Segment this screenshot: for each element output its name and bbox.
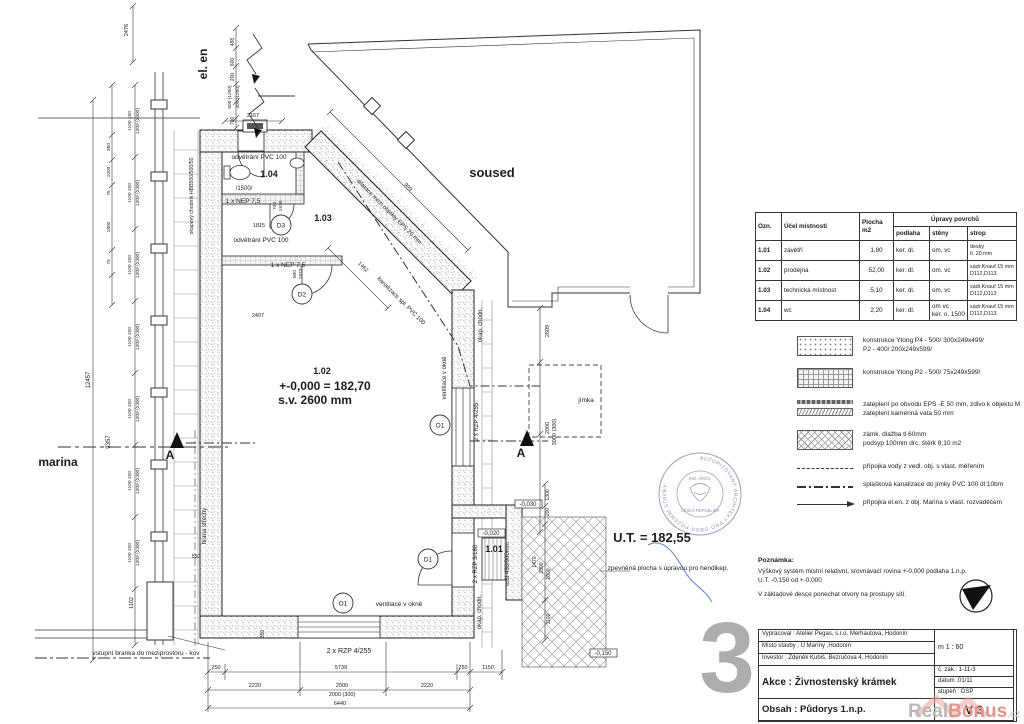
dim-w4b: 1200 (2400) — [135, 324, 141, 350]
dim-2220a: 2220 — [249, 683, 261, 689]
cell-line: wc — [784, 307, 857, 315]
legend-text: zateplení po obvodu EPS -E 50 mm, zdivo … — [863, 400, 1020, 418]
cell-line: 1.02 — [758, 267, 779, 275]
rost-label: rošt 450/900mm — [505, 542, 511, 585]
legend-line: zateplení po obvodu EPS -E 50 mm, zdivo … — [863, 400, 1020, 409]
note-line: U.T. -0,150 od +-0,000 — [758, 576, 1020, 585]
dim-3000-300: 3000 (300) — [552, 419, 558, 446]
legend-item: přípojka vody z vedl. obj. s vlast. měře… — [797, 462, 1024, 471]
dim-2000-jimka: 2000 — [545, 422, 551, 434]
cell-line: technická místnost — [784, 287, 857, 295]
legend-text: zámk. dlažba tl 60mmpodsyp 100mm drc. št… — [863, 430, 961, 448]
dim-999: 999 — [402, 182, 413, 193]
strips-swatch-icon — [797, 400, 853, 416]
mark-label-o1: O1 — [339, 600, 348, 607]
legend-item: konstrukce Ytong P2 - 500/ 75x249x599/ — [797, 368, 1024, 388]
table-cell: prodejna — [782, 261, 860, 281]
ut-level: U.T. = 182,55 — [613, 530, 691, 545]
cell-line: D112,D113 — [970, 311, 1014, 318]
sheet-number: 3 — [699, 602, 755, 714]
hrana-strechy: hrana střechy — [202, 508, 208, 544]
dim-75b: 75 — [106, 259, 112, 265]
watermark-real: Real — [908, 701, 948, 723]
cell-line: sádr.Knauf 15 mm — [970, 284, 1014, 291]
cell-line: ker. dl. — [896, 287, 927, 295]
dim-1815: 1815 — [253, 223, 265, 229]
table-cell: deskytl. 20 mm — [968, 241, 1017, 261]
cell-line: 1.03 — [758, 287, 779, 295]
cell-line: om. vc — [932, 267, 965, 275]
stamp-inner-1: ING. ARCH. — [689, 476, 712, 481]
table-cell: ker. dl. — [894, 281, 930, 301]
dim-w6b: 1200 (2400) — [135, 468, 141, 494]
table-row: 1.01závětří1,80ker. dl.om. vcdeskytl. 20… — [756, 241, 1017, 261]
dim-2000b: 2000 — [336, 683, 348, 689]
table-cell: 5,10 — [860, 281, 894, 301]
dim-w5b: 1200 (2400) — [135, 396, 141, 422]
legend-line: zateplení kamenná vata 50 mm — [863, 409, 1020, 418]
rzp-bottom: 2 x RZP 4/255 — [327, 648, 372, 655]
table-cell: wc — [782, 301, 860, 321]
cell-line: prodejna — [784, 267, 857, 275]
table-cell: sádr.Knauf 15 mmD112,D113 — [968, 301, 1017, 321]
watermark-cz: .cz — [1007, 709, 1020, 720]
table-cell: 1.02 — [756, 261, 782, 281]
cell-line: om. vc — [932, 287, 965, 295]
cell-line: Plocha — [862, 219, 891, 227]
table-cell: technická místnost — [782, 281, 860, 301]
table-cell: ker. dl. — [894, 301, 930, 321]
vent-104: odvětrání PVC 100 — [232, 154, 287, 161]
cell-line: podlaha — [896, 230, 927, 238]
table-cell: 1,80 — [860, 241, 894, 261]
dim-350b: 350 — [260, 630, 266, 639]
dim-1600: 1600 — [546, 568, 552, 579]
table-cell: ker. dl. — [894, 241, 930, 261]
dim-600a: 600 — [230, 58, 236, 67]
section-marker-right — [520, 430, 534, 446]
table-cell: 1.03 — [756, 281, 782, 301]
stamp-emblem — [690, 484, 710, 502]
notes: Poznámka: Výškový systém místní relativn… — [758, 556, 1020, 600]
legend-item: zámk. dlažba tl 60mmpodsyp 100mm drc. št… — [797, 430, 1024, 450]
table-cell: 2,20 — [860, 301, 894, 321]
table-cell: sádr.Knauf 15 mmD112,D113 — [968, 261, 1017, 281]
level-0150: -0,150 — [594, 651, 612, 657]
zpevnena-label: zpevněná plocha s úpravou pro hendikep. — [608, 565, 729, 572]
vent-103: odvětrání PVC 100 — [234, 237, 289, 244]
legend-line: P2 - 400/ 200x249x599/ — [863, 345, 984, 354]
table-cell: závětří — [782, 241, 860, 261]
rzp-porch: 2 x RZP 3/180 — [473, 544, 479, 583]
table-header-cell: Účel místnosti — [782, 213, 860, 241]
dim-2390: 2390 — [539, 562, 545, 573]
titleblock-datum: datum :01/11 — [935, 677, 1014, 688]
dim-1100p: 1100 — [546, 613, 552, 624]
stamp-ring-text: AUTORIZOVANÝ ARCHITEKT PRO OBOR POZEMNÍ … — [662, 456, 738, 532]
dim-75a: 75 — [106, 190, 112, 196]
dim-1800L: 1800 — [106, 221, 112, 232]
cell-line: 1.04 — [758, 307, 779, 315]
dash-swatch-icon — [797, 468, 853, 469]
vent-bottom: ventilace v okně — [376, 601, 423, 608]
dim-1300: 1300 — [545, 489, 551, 500]
dim-200: 200 — [230, 73, 236, 82]
dim-2000-300: 2000 (300) — [329, 692, 356, 698]
cell-line: sádr.Knauf 15 mm — [970, 304, 1014, 311]
dim-w6a: 1100 150 — [127, 471, 133, 491]
cell-line: ker. dl. — [896, 267, 927, 275]
cell-line: desky — [970, 244, 1014, 251]
legend-text: konstrukce Ytong P4 - 500/ 300x249x499/P… — [863, 336, 984, 354]
table-row: 1.03technická místnost5,10ker. dl.om. vc… — [756, 281, 1017, 301]
watermark: RealBonus.cz — [908, 701, 1020, 723]
washbasin-fixture — [290, 158, 304, 168]
dim-250b: 250 — [458, 665, 467, 671]
dim-700t: 700 — [230, 117, 236, 126]
room-table: Ozn.Účel místnostiPlocham2Úpravy povrchů… — [755, 212, 1017, 321]
strip-eps — [797, 400, 853, 404]
kanalizace-label: kanalizace spl. PVC 100 — [376, 276, 427, 327]
dim-w7a: 1100 150 — [127, 543, 133, 563]
legend-text: přípojka el.en. z obj. Marina s vlast. r… — [863, 498, 1002, 507]
section-line — [170, 430, 548, 448]
stamp-inner-2: ČESKÁ REPUBLIKA — [681, 508, 720, 513]
dim-350L: 350 — [106, 143, 112, 151]
legend-line: splašková kanalizace do jímky PVC 100 dl… — [863, 480, 1003, 489]
cell-line: m2 — [862, 227, 891, 235]
paving-area — [522, 517, 606, 667]
dim-w3b: 1200 (2400) — [135, 252, 141, 278]
titleblock-akce: Akce : Živnostenský krámek — [759, 666, 935, 699]
cell-line: závětří — [784, 247, 857, 255]
table-cell: 1.01 — [756, 241, 782, 261]
okap-right: okap. chodn. — [478, 307, 484, 342]
table-cell: om. vc — [930, 281, 968, 301]
table-header-cell: Ozn. — [756, 213, 782, 241]
legend-text: konstrukce Ytong P2 - 500/ 75x249x599/ — [863, 368, 980, 377]
grid-swatch-icon — [797, 368, 853, 388]
cell-line: Ozn. — [758, 223, 779, 231]
dim-1462: 1462 — [356, 261, 369, 274]
table-header-cell: Úpravy povrchů — [894, 213, 1017, 227]
mark-label-d1: D1 — [424, 556, 433, 563]
table-row: 1.02prodejna52,00ker. dl.om. vcsádr.Knau… — [756, 261, 1017, 281]
table-row: 1.04wc2,20ker. dl.om vcker. o. 1500sádr.… — [756, 301, 1017, 321]
table-cell: sádr.Knauf 15 mmD112,D113 — [968, 281, 1017, 301]
section-a-right: A — [517, 446, 526, 460]
table-cell: 52,00 — [860, 261, 894, 281]
dim-d3-1970: 1970 — [278, 200, 284, 211]
dim-d2-800: 800 — [292, 270, 298, 278]
room-102-level: +-0,000 = 182,70 — [279, 379, 371, 393]
mark-label-d2: D2 — [298, 291, 307, 298]
legend: konstrukce Ytong P4 - 500/ 300x249x499/P… — [797, 336, 1024, 516]
legend-line: přípojka el.en. z obj. Marina s vlast. r… — [863, 498, 1002, 507]
cell-line: 5,10 — [862, 287, 891, 295]
table-subheader-cell: podlaha — [894, 227, 930, 241]
section-a-left: A — [166, 448, 175, 462]
svg-text:AUTORIZOVANÝ ARCHITEKT PRO OBO: AUTORIZOVANÝ ARCHITEKT PRO OBOR POZEMNÍ … — [662, 456, 738, 532]
arrow-swatch-icon — [797, 504, 853, 505]
level-0030: -0,030 — [519, 502, 537, 508]
dim-1470: 1470 — [532, 556, 538, 567]
titleblock-zakazka: č. zak.: 1-11-3 — [935, 666, 1014, 677]
table-cell: om vcker. o. 1500 — [930, 301, 968, 321]
table-subheader-cell: stěny — [930, 227, 968, 241]
dim-200p: 200 — [545, 508, 551, 517]
el-en-label: el. en — [196, 49, 210, 80]
room-104-number: 1.04 — [260, 169, 278, 179]
dim-5739: 5739 — [335, 665, 347, 671]
legend-line: přípojka vody z vedl. obj. s vlast. měře… — [863, 462, 984, 471]
dim-w3a: 1100 150 — [127, 255, 133, 275]
dim-400-1250: 400 (1250) — [235, 85, 241, 109]
dim-2167: 2167 — [247, 113, 259, 119]
room-102-height: s.v. 2600 mm — [278, 393, 352, 407]
flow-1500: /1500/ — [236, 186, 253, 192]
table-cell: 1.04 — [756, 301, 782, 321]
strip-vata — [797, 408, 853, 416]
dim-2476: 2476 — [124, 24, 130, 36]
dim-d2-1970: 1970 — [298, 268, 304, 279]
cell-line: om vc — [932, 303, 965, 311]
titleblock-investor: Investor : Zdeněk Kubiš, Bezručova 4, Ho… — [759, 654, 935, 666]
cell-line: sádr.Knauf 15 mm — [970, 264, 1014, 271]
legend-line: konstrukce Ytong P4 - 500/ 300x249x499/ — [863, 336, 984, 345]
cell-line: Úpravy povrchů — [896, 216, 1014, 224]
rzp-right: 2 x RZP 4/255 — [474, 402, 480, 441]
note-line: V základové desce ponechat otvory na pro… — [758, 590, 1020, 599]
dim-550: 550 — [192, 554, 201, 560]
room-103-number: 1.03 — [314, 213, 332, 223]
watermark-bonus: Bonus — [948, 701, 1007, 723]
dim-1150: 1150 — [482, 665, 494, 671]
dim-12457: 12457 — [86, 371, 92, 388]
signature — [648, 543, 712, 602]
legend-line: zámk. dlažba tl 60mm — [863, 430, 961, 439]
cell-line: D112,D113 — [970, 291, 1014, 298]
okap-left: okapový chodník HBB500/500/50 — [189, 157, 195, 234]
table-cell: om. vc — [930, 261, 968, 281]
cell-line: ker. dl. — [896, 307, 927, 315]
mark-label-o1: O1 — [436, 422, 445, 429]
dim-488: 488 — [230, 38, 236, 47]
cell-line: 2,20 — [862, 307, 891, 315]
titleblock-vypracoval: Vypracoval : Atelier Pegas, s.r.o. Merha… — [759, 630, 935, 642]
eps-joint-band — [319, 124, 478, 283]
dim-w4a: 1100 150 — [127, 327, 133, 347]
dim-6440: 6440 — [334, 701, 346, 707]
dim-9357: 9357 — [106, 435, 112, 449]
titleblock-scale: m 1 : 60 — [935, 630, 1014, 666]
plan-labels: el. ensousedmarinaodvětrání PVC 1001.04/… — [38, 24, 728, 707]
dim-d3-700: 700 — [272, 202, 278, 210]
legend-line: konstrukce Ytong P2 - 500/ 75x249x599/ — [863, 368, 980, 377]
table-cell: ker. dl. — [894, 261, 930, 281]
branka-label: vstupní branka do meziprostoru - kov — [93, 650, 201, 657]
cell-line: 52,00 — [862, 267, 891, 275]
cell-line: tl. 20 mm — [970, 251, 1014, 258]
soused-label: soused — [469, 165, 515, 180]
cell-line: ker. dl. — [896, 247, 927, 255]
dim-1000L: 1000 — [106, 166, 112, 177]
legend-text: přípojka vody z vedl. obj. s vlast. měře… — [863, 462, 984, 471]
legend-item: přípojka el.en. z obj. Marina s vlast. r… — [797, 498, 1024, 507]
cell-line: Účel místnosti — [784, 223, 857, 231]
marina-label: marina — [38, 455, 78, 469]
section-marker-left — [170, 432, 184, 448]
dim-2609: 2609 — [545, 325, 551, 337]
architect-stamp: AUTORIZOVANÝ ARCHITEKT PRO OBOR POZEMNÍ … — [648, 453, 741, 602]
cell-line: ker. o. 1500 — [932, 311, 965, 319]
cell-line: 1.01 — [758, 247, 779, 255]
cell-line: om. vc — [932, 247, 965, 255]
cell-line: strop — [970, 230, 1014, 238]
dim-2220b: 2220 — [421, 683, 433, 689]
legend-item: zateplení po obvodu EPS -E 50 mm, zdivo … — [797, 400, 1024, 418]
note-line: Výškový systém místní relativní, srovnáv… — [758, 567, 1020, 576]
table-header-cell: Plocham2 — [860, 213, 894, 241]
cell-line: stěny — [932, 230, 965, 238]
stipple-swatch-icon — [797, 336, 853, 356]
dim-w5a: 1100 150 — [127, 399, 133, 419]
okap-bottom-right: okap. chodn. — [477, 594, 483, 629]
level-0020: -0,020 — [482, 531, 500, 537]
legend-item: konstrukce Ytong P4 - 500/ 300x249x499/P… — [797, 336, 1024, 356]
dim-w1b: 1200 (2400) — [135, 108, 141, 134]
notes-title: Poznámka: — [758, 556, 1020, 566]
legend-item: splašková kanalizace do jímky PVC 100 dl… — [797, 480, 1024, 489]
mark-label-d3: D3 — [277, 222, 286, 229]
dim-w7b: 1200 (2400) — [135, 540, 141, 566]
dim-w2b: 1200 (2400) — [135, 180, 141, 206]
floor-plan-sheet: AUTORIZOVANÝ ARCHITEKT PRO OBOR POZEMNÍ … — [0, 0, 1024, 724]
nep-bottom: 1 x NEP 7,5 — [271, 262, 306, 269]
dashdot-swatch-icon — [797, 486, 853, 488]
room-102-number: 1.02 — [313, 366, 331, 376]
marina-fence — [35, 72, 200, 645]
nep-top: 1 x NEP 7,5 — [226, 198, 261, 205]
cell-line: 1,80 — [862, 247, 891, 255]
table-cell: om. vc — [930, 241, 968, 261]
electric-arrowhead-1 — [252, 74, 260, 84]
room-101-number: 1.01 — [485, 544, 503, 554]
legend-line: podsyp 100mm drc. štěrk 8,10 m2 — [863, 439, 961, 448]
legend-text: splašková kanalizace do jímky PVC 100 dl… — [863, 480, 1003, 489]
vent-right: ventilace v okně — [442, 356, 448, 400]
diamond-swatch-icon — [797, 430, 853, 450]
jimka-label: jímka — [577, 397, 594, 404]
dim-w2a: 1100 150 — [127, 183, 133, 203]
table-subheader-cell: strop — [968, 227, 1017, 241]
dim-w1a: 1100 150 — [127, 111, 133, 131]
dim-600-1250: 600 (1250) — [227, 85, 233, 109]
dim-2407: 2407 — [252, 313, 264, 319]
titleblock-misto: Místo stavby : U Maríny ,Hodonín — [759, 642, 935, 654]
dim-1102: 1102 — [129, 597, 135, 609]
dim-250a: 250 — [211, 665, 220, 671]
cell-line: D112,D113 — [970, 271, 1014, 278]
